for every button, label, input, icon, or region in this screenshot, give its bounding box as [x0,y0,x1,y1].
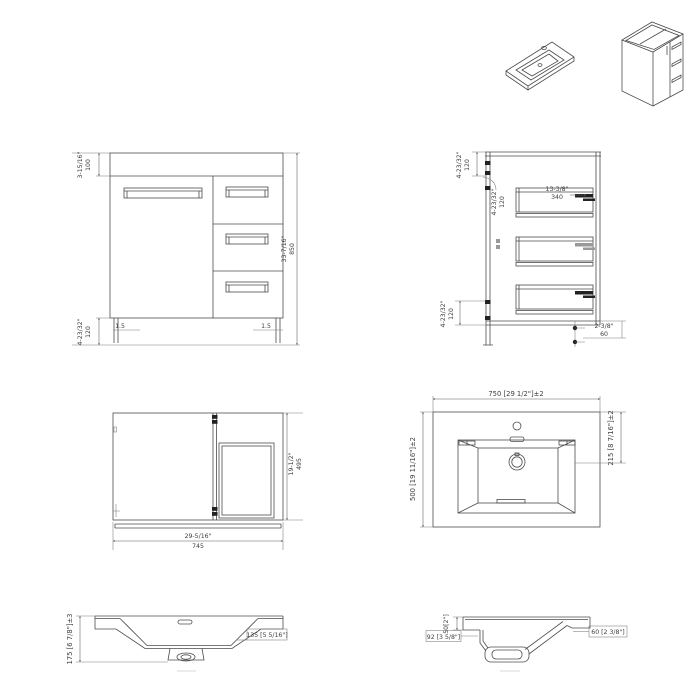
dim-plan-depth-mm: 495 [296,458,303,470]
faucet-hole [513,422,521,430]
dim-sink-apron: 135 [5 5/16"] [246,632,287,639]
dim-sink-front-depth: 92 [3 5/8"] [427,634,460,641]
vanity-spec-sheet: 3-15/16" 100 4-23/32" 120 33-7/16" 850 1… [0,0,700,700]
overflow-slot [178,620,192,624]
overflow-slot [510,437,524,442]
drawer-box-2 [516,237,595,266]
dim-section-bottom-mm: 120 [448,308,455,320]
sink-side-section-view: 50[2"] 92 [3 5/8"] 60 [2 3/8"] [426,614,627,671]
dim-sink-drain-offset: 215 [8 7/16"]±2 [607,410,615,465]
hinge-mark-top [212,415,218,419]
drawer-handle-3 [226,282,268,292]
dim-plan-depth-in: 19-1/2" [288,452,295,475]
dim-leg-in: 2-3/8" [595,323,614,330]
dim-left-reveal: 1.5 [115,323,125,330]
drawer-slide-2 [575,243,593,247]
drawer-box-3 [516,285,595,314]
technical-drawing: 3-15/16" 100 4-23/32" 120 33-7/16" 850 1… [0,0,700,700]
dim-section-inner-in: 4-23/32" [491,188,498,215]
drain-hole [538,64,542,67]
dim-top-rail-mm: 100 [85,159,92,171]
dim-sink-back-depth: 60 [2 3/8"] [591,629,624,636]
dim-sink-depth: 500 [19 11/16"]±2 [409,437,417,501]
cabinet-isometric-thumbnail [622,22,683,106]
section-view: 4-23/32" 120 4-23/32" 120 13-3/8" 340 4-… [440,151,626,347]
dim-top-rail-in: 3-15/16" [77,151,84,178]
dim-plan-width-mm: 745 [192,543,204,550]
dim-plan-width-in: 29-5/16" [185,533,212,540]
dim-section-bottom-in: 4-23/32" [440,300,447,327]
drawer-slide-3 [575,291,593,295]
dim-toe-kick-in: 4-23/32" [77,318,84,345]
dim-right-reveal: 1.5 [261,323,271,330]
dim-toe-kick-mm: 120 [85,326,92,338]
sink-front-section-view: 175 [6 7/8"]±3 135 [5 5/16"] [66,613,288,671]
sink-isometric-thumbnail [506,42,574,90]
drawer-handle-2 [226,234,268,244]
dim-sink-width: 750 [29 1/2"]±2 [488,390,543,398]
drawer-handle-1 [226,187,268,197]
dim-section-top-mm: 120 [464,159,471,171]
dim-section-top-in: 4-23/32" [456,151,463,178]
dim-leg-mm: 60 [600,331,608,338]
dim-drawer-mm: 340 [551,194,563,201]
front-elevation-view: 3-15/16" 100 4-23/32" 120 33-7/16" 850 1… [72,151,300,345]
door-handle [124,188,202,198]
dim-height-mm: 850 [289,243,296,255]
dim-height-in: 33-7/16" [281,235,288,262]
dim-sink-height: 175 [6 7/8"]±3 [66,613,74,664]
dim-sink-rim: 50[2"] [443,614,450,633]
drawer-slide-1 [575,194,593,198]
hinge-mark-bottom [212,507,218,511]
dim-drawer-in: 13-3/8" [546,186,569,193]
dim-section-inner-mm: 120 [499,196,506,208]
sink-top-view: 750 [29 1/2"]±2 500 [19 11/16"]±2 215 [8… [409,390,626,527]
plan-view: 29-5/16" 745 19-1/2" 495 [113,413,303,550]
